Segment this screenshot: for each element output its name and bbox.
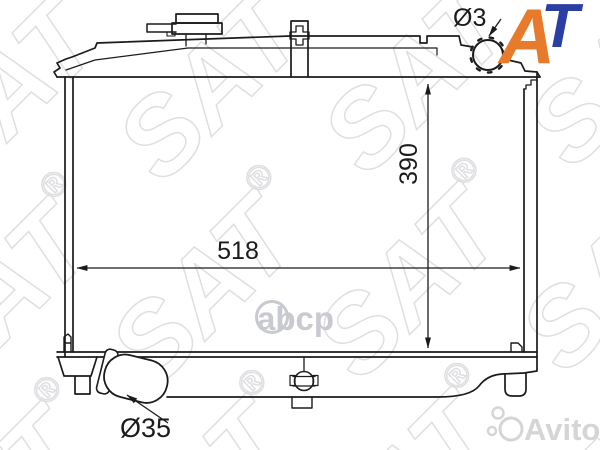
avito-text: Avito bbox=[524, 412, 600, 447]
radiator-diagram-page: SAT®SAT®SAT®SAT®SAT®SAT®SAT®SAT®SAT®SAT®… bbox=[0, 0, 600, 450]
avito-dot-small-left bbox=[488, 427, 496, 435]
drain-plug bbox=[290, 357, 318, 408]
abcp-watermark: abcp bbox=[257, 300, 335, 337]
left-foot bbox=[58, 357, 97, 394]
right-tab bbox=[511, 343, 522, 352]
avito-dot-small-top bbox=[493, 408, 504, 419]
width-dimension-label: 518 bbox=[217, 237, 259, 265]
height-dimension-label: 390 bbox=[395, 143, 423, 185]
right-foot bbox=[505, 374, 526, 396]
sat-watermark-text: SAT® bbox=[284, 352, 537, 450]
core-left-edges bbox=[65, 77, 73, 357]
avito-watermark: Avito bbox=[488, 408, 600, 448]
diagram-canvas: SAT®SAT®SAT®SAT®SAT®SAT®SAT®SAT®SAT®SAT®… bbox=[0, 0, 600, 450]
abcp-text: abcp bbox=[257, 300, 334, 337]
at-logo-letter-a: A bbox=[497, 0, 555, 80]
avito-dot-large bbox=[500, 418, 522, 440]
outlet-diameter-label: Ø35 bbox=[120, 413, 171, 443]
inlet-diameter-label: Ø3 bbox=[453, 4, 486, 32]
